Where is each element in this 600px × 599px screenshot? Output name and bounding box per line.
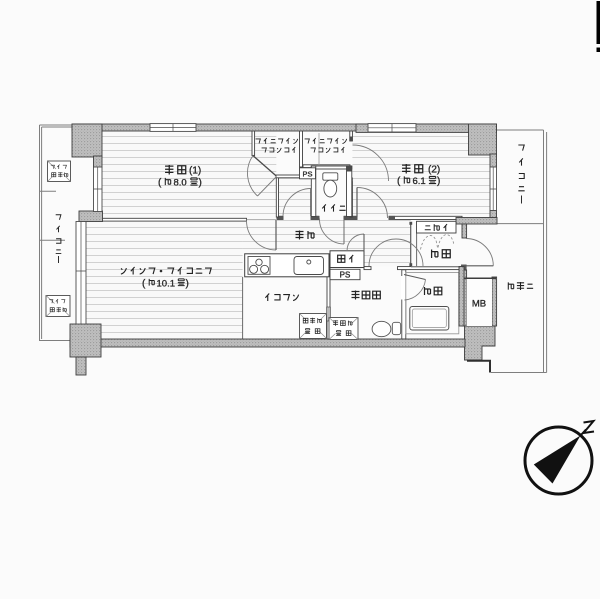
- svg-text:8.0: 8.0: [174, 178, 187, 189]
- svg-text:10.1: 10.1: [157, 279, 176, 290]
- svg-text:): ): [437, 176, 440, 187]
- svg-text:): ): [186, 279, 189, 290]
- svg-text:MB: MB: [472, 299, 486, 310]
- svg-text:(1): (1): [189, 166, 201, 177]
- svg-text:(2): (2): [428, 165, 440, 176]
- svg-text:): ): [199, 178, 202, 189]
- svg-text:6.1: 6.1: [413, 176, 426, 187]
- svg-text:PS: PS: [302, 169, 312, 178]
- svg-text:PS: PS: [340, 271, 351, 280]
